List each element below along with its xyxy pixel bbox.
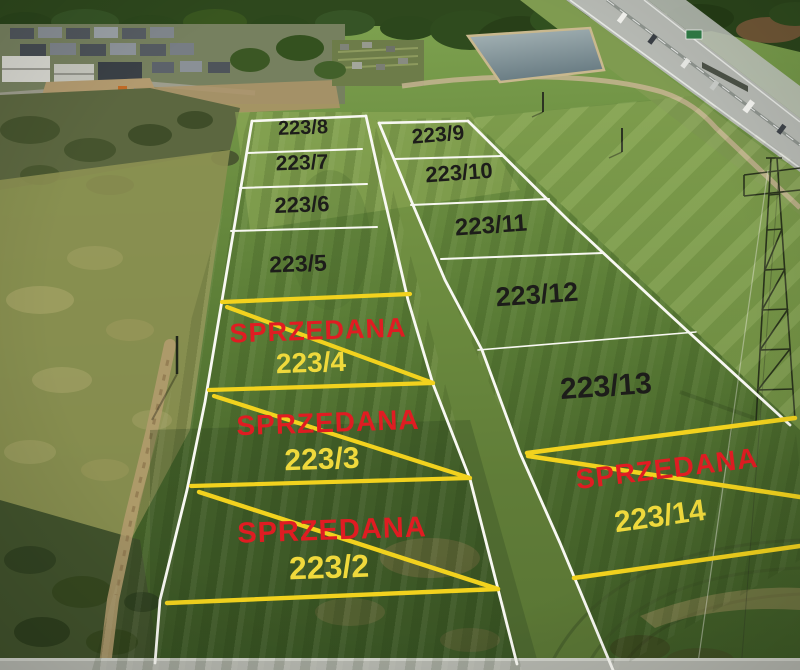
- aerial-photo-plot-map: 223/8223/7223/6223/5223/9223/10223/11223…: [0, 0, 800, 670]
- photo-vignette: [0, 0, 800, 670]
